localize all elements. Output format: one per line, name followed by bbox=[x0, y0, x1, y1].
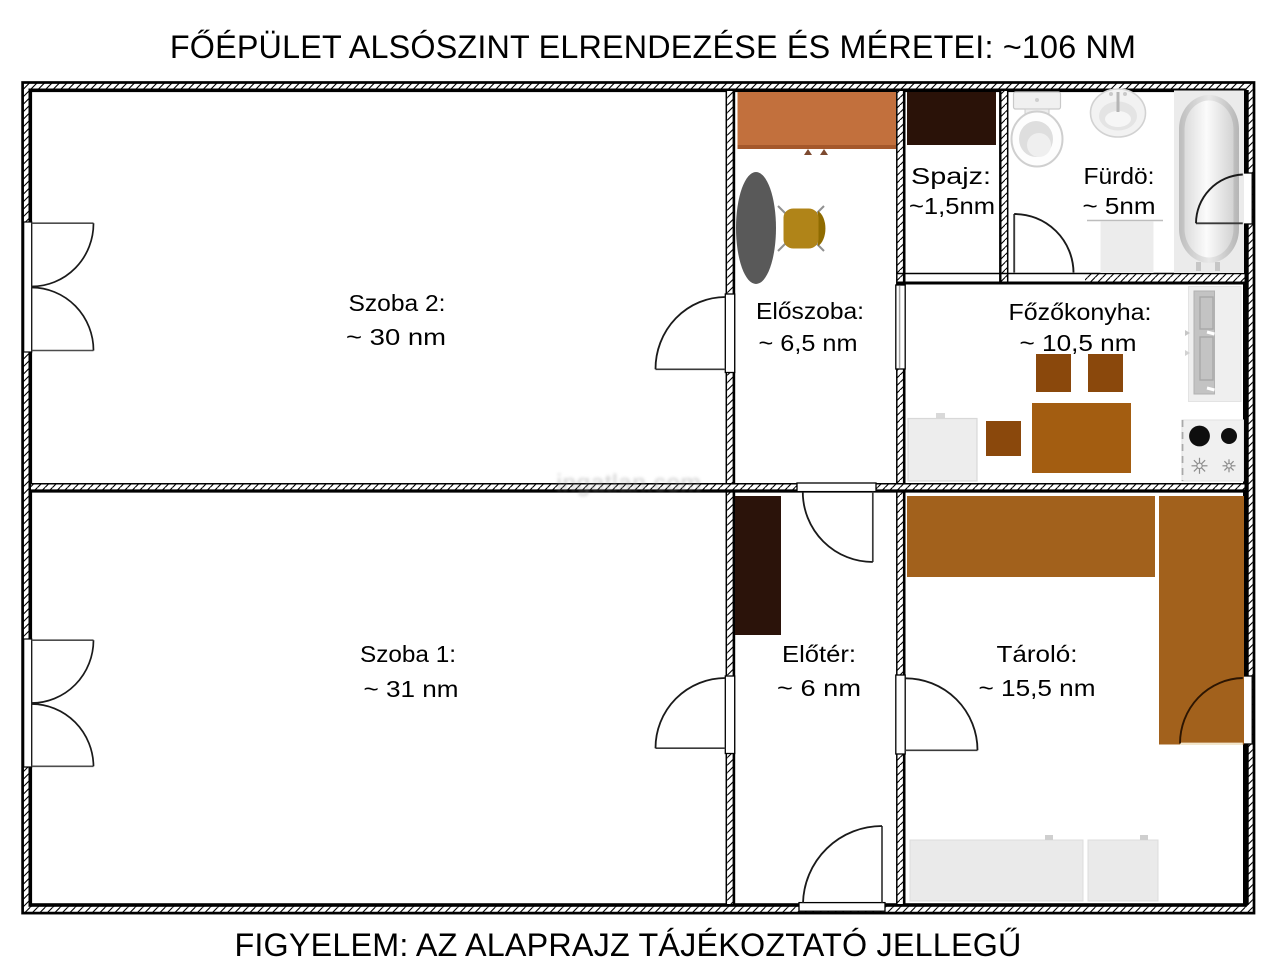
svg-text:Előszoba:: Előszoba: bbox=[756, 298, 864, 324]
svg-text:~1,5nm: ~1,5nm bbox=[909, 193, 995, 219]
svg-text:~ 6,5 nm: ~ 6,5 nm bbox=[759, 330, 858, 356]
svg-text:Főzőkonyha:: Főzőkonyha: bbox=[1009, 299, 1152, 325]
svg-text:FŐÉPÜLET ALSÓSZINT ELRENDEZÉSE: FŐÉPÜLET ALSÓSZINT ELRENDEZÉSE ÉS MÉRETE… bbox=[170, 28, 1136, 65]
svg-text:~ 5nm: ~ 5nm bbox=[1083, 193, 1156, 219]
svg-text:Szoba 2:: Szoba 2: bbox=[349, 290, 446, 316]
svg-text:Tároló:: Tároló: bbox=[997, 641, 1078, 667]
svg-text:~ 10,5 nm: ~ 10,5 nm bbox=[1020, 330, 1137, 356]
svg-text:~ 6 nm: ~ 6 nm bbox=[777, 675, 861, 701]
svg-text:Előtér:: Előtér: bbox=[782, 641, 856, 667]
svg-text:~ 30 nm: ~ 30 nm bbox=[346, 324, 446, 350]
svg-text:~ 15,5 nm: ~ 15,5 nm bbox=[979, 675, 1096, 701]
svg-text:FIGYELEM: AZ ALAPRAJZ TÁJÉKOZT: FIGYELEM: AZ ALAPRAJZ TÁJÉKOZTATÓ JELLEG… bbox=[234, 926, 1021, 963]
svg-text:Spajz:: Spajz: bbox=[911, 163, 991, 189]
svg-text:~ 31 nm: ~ 31 nm bbox=[364, 676, 459, 702]
svg-text:Szoba 1:: Szoba 1: bbox=[360, 641, 456, 667]
svg-text:Fürdö:: Fürdö: bbox=[1084, 163, 1155, 189]
svg-text:ingatlan.com: ingatlan.com bbox=[557, 470, 702, 497]
